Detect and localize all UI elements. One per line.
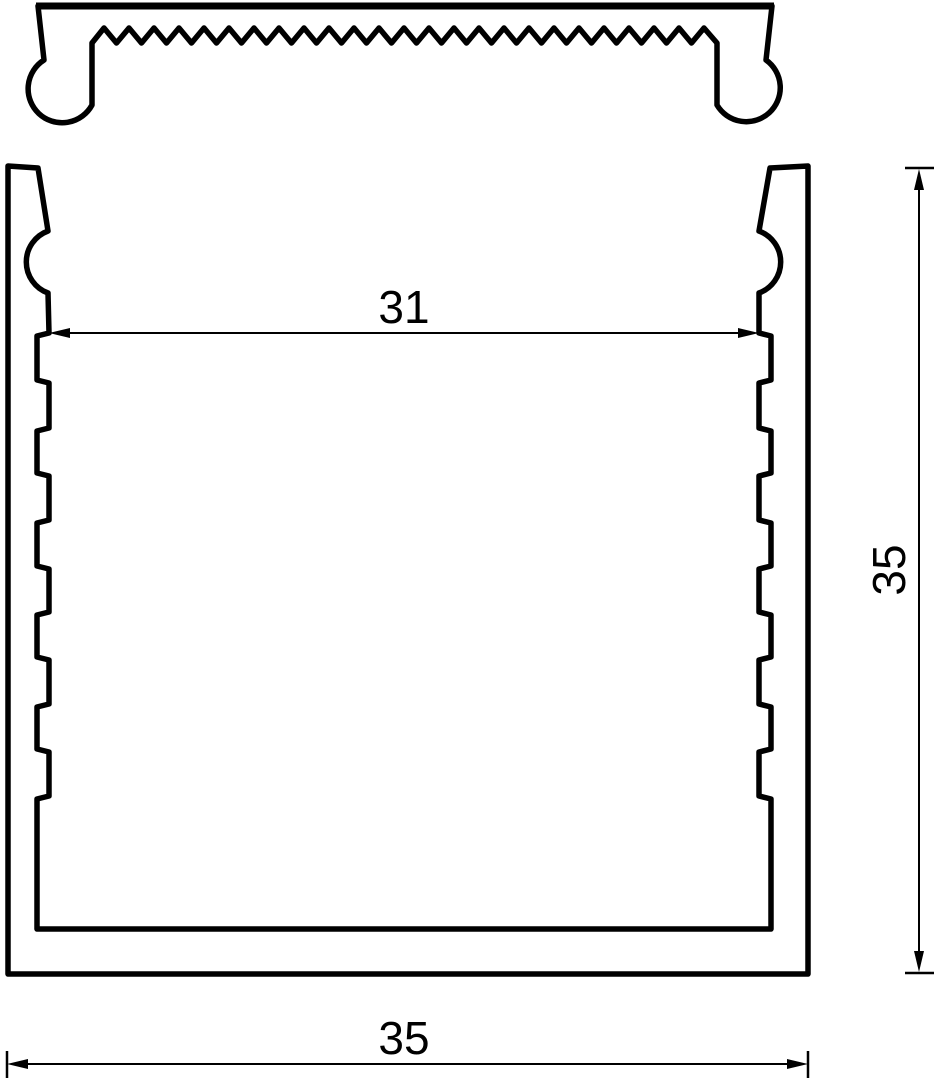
arrowhead-up: [914, 169, 924, 190]
arrowhead-right: [738, 328, 759, 338]
inner-width-dimension: 31: [49, 281, 759, 338]
inner-width-label: 31: [378, 281, 429, 333]
arrowhead-right: [787, 1059, 808, 1069]
height-dimension: 35: [863, 168, 934, 973]
arrowhead-left: [7, 1059, 28, 1069]
arrowhead-left: [49, 328, 70, 338]
arrowhead-down: [914, 951, 924, 972]
outer-width-label: 35: [378, 1012, 429, 1064]
height-label: 35: [863, 544, 915, 595]
profile-cross-section-drawing: 31 35 35: [0, 0, 934, 1080]
cover-profile: [28, 6, 780, 123]
cover-profile-outline: [28, 6, 780, 123]
outer-width-dimension: 35: [7, 1012, 808, 1078]
technical-drawing-page: 31 35 35: [0, 0, 934, 1080]
